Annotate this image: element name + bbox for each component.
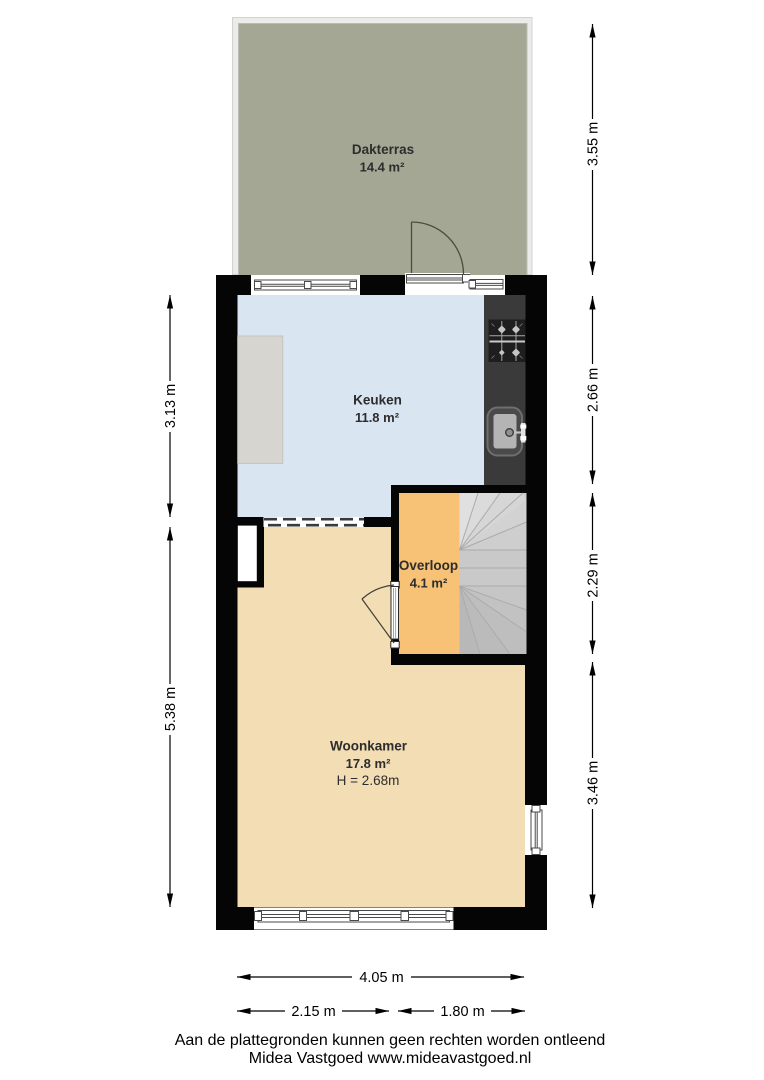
svg-text:Keuken: Keuken [353, 393, 402, 408]
svg-text:3.55 m: 3.55 m [586, 122, 602, 166]
svg-text:11.8 m²: 11.8 m² [355, 410, 400, 425]
svg-text:17.8 m²: 17.8 m² [346, 756, 391, 771]
svg-text:2.66 m: 2.66 m [586, 368, 602, 412]
svg-text:Woonkamer: Woonkamer [330, 739, 408, 754]
svg-text:H = 2.68m: H = 2.68m [337, 773, 400, 788]
svg-text:5.38 m: 5.38 m [163, 687, 179, 731]
svg-text:3.13 m: 3.13 m [163, 384, 179, 428]
svg-text:Midea Vastgoed www.mideavastgo: Midea Vastgoed www.mideavastgoed.nl [249, 1050, 532, 1067]
svg-text:14.4 m²: 14.4 m² [360, 160, 405, 175]
svg-text:Aan de plattegronden kunnen ge: Aan de plattegronden kunnen geen rechten… [175, 1032, 606, 1049]
svg-text:4.05 m: 4.05 m [359, 970, 403, 986]
svg-text:4.1 m²: 4.1 m² [410, 576, 448, 591]
svg-text:2.29 m: 2.29 m [586, 553, 602, 597]
svg-text:Overloop: Overloop [399, 558, 458, 573]
svg-text:2.15 m: 2.15 m [291, 1004, 335, 1020]
svg-text:1.80 m: 1.80 m [440, 1004, 484, 1020]
svg-text:3.46 m: 3.46 m [586, 761, 602, 805]
svg-text:Dakterras: Dakterras [352, 142, 414, 157]
